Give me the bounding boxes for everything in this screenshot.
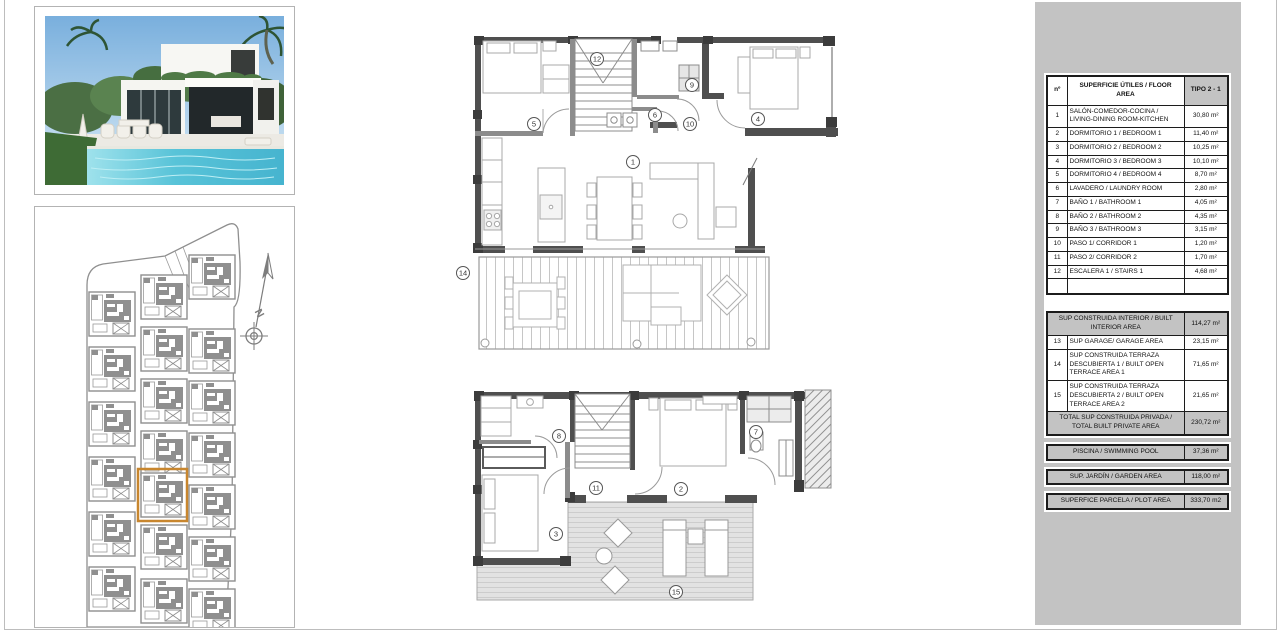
area-table-header: nº SUPERFICIE ÚTILES / FLOOR AREA TIPO 2… <box>1047 76 1228 105</box>
bedroom1-furniture <box>649 396 737 466</box>
room-label-corridor1: 10 <box>684 118 697 131</box>
svg-text:11: 11 <box>592 484 600 493</box>
row-value: 114,27 m² <box>1184 312 1228 335</box>
area-table-row: 15SUP CONSTRUIDA TERRAZA DESCUBIERTA 2 /… <box>1047 381 1228 412</box>
row-value: 10,10 m² <box>1184 155 1228 169</box>
row-value: 4,68 m² <box>1184 265 1228 279</box>
area-table-row: 1SALÓN-COMEDOR-COCINA / LIVING-DINING RO… <box>1047 105 1228 128</box>
area-table-row: 8BAÑO 2 / BATHROOM 24,35 m² <box>1047 210 1228 224</box>
row-num: 15 <box>1047 381 1067 412</box>
room-label-laundry: 6 <box>649 109 662 122</box>
row-num: 6 <box>1047 183 1067 197</box>
row-num: 1 <box>1047 105 1067 128</box>
site-units-left <box>89 292 135 611</box>
row-num: 8 <box>1047 210 1067 224</box>
floor-plan-lower-svg: 8 7 2 11 3 15 <box>455 380 855 615</box>
svg-text:9: 9 <box>690 81 694 90</box>
room-label-bed4: 5 <box>528 118 541 131</box>
svg-text:7: 7 <box>754 428 758 437</box>
row-num: 5 <box>1047 169 1067 183</box>
room-label-terrace1: 14 <box>457 267 470 280</box>
row-label: SUP CONSTRUIDA TERRAZA DESCUBIERTA 2 / B… <box>1067 381 1184 412</box>
room-label-corridor2: 11 <box>590 482 603 495</box>
row-value: 1,70 m² <box>1184 251 1228 265</box>
table-gap <box>1046 295 1229 311</box>
footer-row: PISCINA / SWIMMING POOL37,36 m² <box>1047 445 1228 460</box>
area-table-panel: nº SUPERFICIE ÚTILES / FLOOR AREA TIPO 2… <box>1035 2 1241 625</box>
row-num: 4 <box>1047 155 1067 169</box>
room-label-terrace2: 15 <box>670 586 683 599</box>
svg-text:1: 1 <box>631 158 635 167</box>
area-table-row: 4DORMITORIO 3 / BEDROOM 310,10 m² <box>1047 155 1228 169</box>
row-num: 14 <box>1047 349 1067 380</box>
row-num: 3 <box>1047 141 1067 155</box>
area-table-row: 5DORMITORIO 4 / BEDROOM 48,70 m² <box>1047 169 1228 183</box>
row-label: TOTAL SUP CONSTRUIDA PRIVADA / TOTAL BUI… <box>1047 412 1184 435</box>
north-arrow: N <box>240 253 273 350</box>
built-area-table: SUP CONSTRUIDA INTERIOR / BUILT INTERIOR… <box>1046 311 1229 435</box>
room-label-living: 1 <box>627 156 640 169</box>
room-label-bed3: 4 <box>752 113 765 126</box>
area-table-row: 13SUP GARAGE/ GARAGE AREA23,15 m² <box>1047 336 1228 350</box>
footer-table-block: SUPERFICE PARCELA / PLOT AREA333,70 m2 <box>1044 491 1231 512</box>
footer-label: SUPERFICE PARCELA / PLOT AREA <box>1047 494 1184 509</box>
bedroom2-furniture <box>482 475 538 551</box>
row-label: SUP CONSTRUIDA TERRAZA DESCUBIERTA 1 / B… <box>1067 349 1184 380</box>
svg-text:14: 14 <box>459 269 467 278</box>
kitchen <box>482 138 565 245</box>
row-num: 13 <box>1047 336 1067 350</box>
row-label: SALÓN-COMEDOR-COCINA / LIVING-DINING ROO… <box>1067 105 1184 128</box>
footer-row: SUPERFICE PARCELA / PLOT AREA333,70 m2 <box>1047 494 1228 509</box>
svg-text:3: 3 <box>554 530 558 539</box>
svg-text:10: 10 <box>686 120 694 129</box>
site-units-middle <box>141 275 187 623</box>
row-num: 7 <box>1047 196 1067 210</box>
sofa <box>650 158 757 239</box>
staircase <box>575 394 630 468</box>
north-label: N <box>252 307 266 320</box>
row-value: 230,72 m² <box>1184 412 1228 435</box>
row-label: BAÑO 3 / BATHROOM 3 <box>1067 224 1184 238</box>
room-label-bed2: 2 <box>675 483 688 496</box>
area-table-row: TOTAL SUP CONSTRUIDA PRIVADA / TOTAL BUI… <box>1047 412 1228 435</box>
row-value: 30,80 m² <box>1184 105 1228 128</box>
row-label: DORMITORIO 3 / BEDROOM 3 <box>1067 155 1184 169</box>
room-label-bed3b: 3 <box>550 528 563 541</box>
footer-label: SUP. JARDÍN / GARDEN AREA <box>1047 470 1184 485</box>
row-value: 1,20 m² <box>1184 238 1228 252</box>
dining-table <box>587 177 642 240</box>
footer-table: SUP. JARDÍN / GARDEN AREA118,00 m² <box>1046 469 1229 486</box>
empty-row <box>1047 279 1228 295</box>
empty-cell <box>1047 279 1067 295</box>
row-num: 9 <box>1047 224 1067 238</box>
footer-value: 118,00 m² <box>1184 470 1228 485</box>
header-num: nº <box>1047 76 1067 105</box>
room-label-bath7: 7 <box>750 426 763 439</box>
footer-table-block: PISCINA / SWIMMING POOL37,36 m² <box>1044 442 1231 463</box>
footer-tables: PISCINA / SWIMMING POOL37,36 m²SUP. JARD… <box>1044 442 1231 512</box>
row-num: 12 <box>1047 265 1067 279</box>
row-num: 2 <box>1047 128 1067 142</box>
area-table-row: 7BAÑO 1 / BATHROOM 14,05 m² <box>1047 196 1228 210</box>
footer-label: PISCINA / SWIMMING POOL <box>1047 445 1184 460</box>
row-value: 71,65 m² <box>1184 349 1228 380</box>
area-table: nº SUPERFICIE ÚTILES / FLOOR AREA TIPO 2… <box>1046 75 1229 295</box>
svg-text:12: 12 <box>593 55 601 64</box>
footer-value: 37,36 m² <box>1184 445 1228 460</box>
svg-text:15: 15 <box>672 588 680 597</box>
floor-plan-upper: 12 9 5 6 10 4 1 14 <box>455 25 855 365</box>
drawing-sheet: { "area_table": { "headers": { "num": "n… <box>0 0 1280 636</box>
row-label: PASO 1/ CORRIDOR 1 <box>1067 238 1184 252</box>
site-plan-frame: N <box>34 206 295 628</box>
row-label: DORMITORIO 4 / BEDROOM 4 <box>1067 169 1184 183</box>
villa-photo <box>45 16 284 185</box>
room-label-stairs: 12 <box>591 53 604 66</box>
svg-text:5: 5 <box>532 120 536 129</box>
footer-table: PISCINA / SWIMMING POOL37,36 m² <box>1046 444 1229 461</box>
area-tables: nº SUPERFICIE ÚTILES / FLOOR AREA TIPO 2… <box>1044 73 1231 516</box>
floor-plan-lower: 8 7 2 11 3 15 <box>455 380 855 620</box>
footer-value: 333,70 m2 <box>1184 494 1228 509</box>
empty-cell <box>1067 279 1184 295</box>
row-value: 4,35 m² <box>1184 210 1228 224</box>
row-label: LAVADERO / LAUNDRY ROOM <box>1067 183 1184 197</box>
area-table-row: 3DORMITORIO 2 / BEDROOM 210,25 m² <box>1047 141 1228 155</box>
area-table-row: 10PASO 1/ CORRIDOR 11,20 m² <box>1047 238 1228 252</box>
footer-table-block: SUP. JARDÍN / GARDEN AREA118,00 m² <box>1044 467 1231 488</box>
row-label: ESCALERA 1 / STAIRS 1 <box>1067 265 1184 279</box>
svg-text:4: 4 <box>756 115 760 124</box>
area-table-row: 11PASO 2/ CORRIDOR 21,70 m² <box>1047 251 1228 265</box>
row-num: 11 <box>1047 251 1067 265</box>
row-label: SUP CONSTRUIDA INTERIOR / BUILT INTERIOR… <box>1047 312 1184 335</box>
row-value: 21,65 m² <box>1184 381 1228 412</box>
row-label: PASO 2/ CORRIDOR 2 <box>1067 251 1184 265</box>
area-table-row: SUP CONSTRUIDA INTERIOR / BUILT INTERIOR… <box>1047 312 1228 335</box>
svg-text:8: 8 <box>557 432 561 441</box>
site-plan: N <box>35 207 294 627</box>
row-value: 10,25 m² <box>1184 141 1228 155</box>
row-label: BAÑO 2 / BATHROOM 2 <box>1067 210 1184 224</box>
header-type: TIPO 2 - 1 <box>1184 76 1228 105</box>
svg-text:6: 6 <box>653 111 657 120</box>
row-value: 11,40 m² <box>1184 128 1228 142</box>
area-table-row: 6LAVADERO / LAUNDRY ROOM2,80 m² <box>1047 183 1228 197</box>
row-value: 23,15 m² <box>1184 336 1228 350</box>
row-label: DORMITORIO 2 / BEDROOM 2 <box>1067 141 1184 155</box>
footer-row: SUP. JARDÍN / GARDEN AREA118,00 m² <box>1047 470 1228 485</box>
site-units-right <box>189 255 235 627</box>
footer-table: SUPERFICE PARCELA / PLOT AREA333,70 m2 <box>1046 493 1229 510</box>
row-label: DORMITORIO 1 / BEDROOM 1 <box>1067 128 1184 142</box>
area-table-row: 2DORMITORIO 1 / BEDROOM 111,40 m² <box>1047 128 1228 142</box>
row-value: 2,80 m² <box>1184 183 1228 197</box>
row-label: SUP GARAGE/ GARAGE AREA <box>1067 336 1184 350</box>
room8-furniture <box>481 396 543 436</box>
empty-cell <box>1184 279 1228 295</box>
area-table-row: 9BAÑO 3 / BATHROOM 33,15 m² <box>1047 224 1228 238</box>
room-label-bath3: 9 <box>686 79 699 92</box>
row-num: 10 <box>1047 238 1067 252</box>
pool-edge <box>87 146 284 149</box>
row-value: 3,15 m² <box>1184 224 1228 238</box>
door-arcs <box>535 436 775 494</box>
row-value: 4,05 m² <box>1184 196 1228 210</box>
svg-text:2: 2 <box>679 485 683 494</box>
floor-plan-upper-svg: 12 9 5 6 10 4 1 14 <box>455 25 855 360</box>
row-value: 8,70 m² <box>1184 169 1228 183</box>
room-label-room8: 8 <box>553 430 566 443</box>
header-desc: SUPERFICIE ÚTILES / FLOOR AREA <box>1067 76 1184 105</box>
villa-photo-frame <box>34 6 295 195</box>
main-table-block: nº SUPERFICIE ÚTILES / FLOOR AREA TIPO 2… <box>1044 73 1231 438</box>
hatched-strip <box>805 390 831 488</box>
terrace-14 <box>479 257 769 349</box>
area-table-row: 14SUP CONSTRUIDA TERRAZA DESCUBIERTA 1 /… <box>1047 349 1228 380</box>
area-table-row: 12ESCALERA 1 / STAIRS 14,68 m² <box>1047 265 1228 279</box>
row-label: BAÑO 1 / BATHROOM 1 <box>1067 196 1184 210</box>
